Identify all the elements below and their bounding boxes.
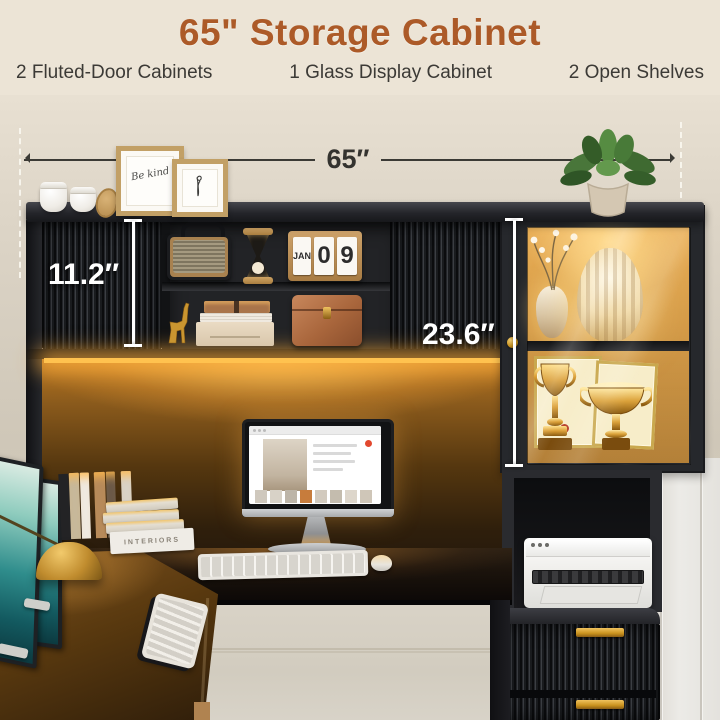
stacked-book-box [196, 322, 274, 346]
drawer-handle-top [576, 628, 624, 637]
drawer-gap [506, 690, 656, 698]
frame-sketch [191, 174, 205, 198]
giraffe-figurine [162, 296, 190, 344]
flip-calendar: JAN 0 9 [288, 231, 362, 281]
wainscot-panel [652, 458, 720, 720]
radio-grille [173, 240, 225, 273]
feature-list: 2 Fluted-Door Cabinets 1 Glass Display C… [0, 62, 720, 84]
hourglass-bottom-cap [243, 277, 273, 284]
stacked-book-middle [200, 313, 272, 322]
browser-bar [249, 426, 381, 435]
jar-lid [70, 187, 96, 194]
webpage-text-lines [313, 444, 361, 471]
display-cabinet-dimension-label: 23.6″ [422, 318, 495, 352]
vintage-radio [167, 234, 231, 280]
webpage-accent-button [365, 440, 372, 447]
leather-box [292, 295, 362, 346]
height-dim-line [513, 220, 516, 466]
ceramic-jar [70, 187, 96, 212]
dimension-guide-left [19, 128, 21, 278]
jar-lid [40, 182, 67, 189]
glass-door [527, 227, 691, 465]
feature-fluted-doors: 2 Fluted-Door Cabinets [16, 62, 212, 84]
page-title: 65" Storage Cabinet [0, 12, 720, 54]
shelf-divider [162, 282, 390, 291]
interiors-book: INTERIORS [109, 528, 194, 554]
leather-box-clasp [323, 307, 331, 319]
calendar-day-ones-card: 9 [337, 237, 357, 275]
printer-paper-tray [540, 586, 642, 604]
webpage-thumbnails [255, 490, 372, 503]
keyboard [198, 550, 369, 580]
ceramic-jar [40, 182, 67, 212]
desk-leg [490, 600, 510, 720]
monitor-chin [242, 509, 394, 517]
stacked-book-top [204, 301, 270, 313]
printer-output-slot [532, 570, 644, 584]
printer [524, 538, 652, 608]
potted-plant [552, 126, 664, 220]
desk-return-leg [194, 702, 210, 720]
depth-dim-cap-bottom [124, 344, 142, 347]
side-monitor-front [0, 455, 44, 669]
wainscot-groove [700, 458, 702, 720]
upper-cabinet-dimension-label: 11.2″ [48, 258, 119, 292]
under-desk-wall [208, 600, 494, 720]
product-showcase-image: 65" Storage Cabinet 2 Fluted-Door Cabine… [0, 0, 720, 720]
drawer-unit-top [502, 608, 660, 624]
led-strip [44, 358, 504, 363]
hourglass-sand [252, 262, 264, 274]
drawer-handle-bottom [576, 700, 624, 709]
hourglass-top-cap [243, 228, 273, 235]
monitor [242, 419, 394, 517]
width-dimension-label: 65″ [327, 144, 370, 175]
height-dim-cap-bottom [505, 464, 523, 467]
picture-frame-small [172, 159, 228, 217]
webpage-product-image [263, 439, 307, 491]
mouse [371, 555, 392, 571]
wall-trim [208, 648, 494, 650]
monitor-screen [249, 426, 381, 504]
feature-open-shelves: 2 Open Shelves [569, 62, 704, 84]
drawer-unit [502, 608, 660, 720]
feature-glass-cabinet: 1 Glass Display Cabinet [289, 62, 492, 84]
printer-buttons [531, 543, 549, 547]
calendar-month-card: JAN [293, 237, 311, 275]
calendar-day-tens-card: 0 [314, 237, 334, 275]
depth-dim-line [132, 221, 135, 345]
